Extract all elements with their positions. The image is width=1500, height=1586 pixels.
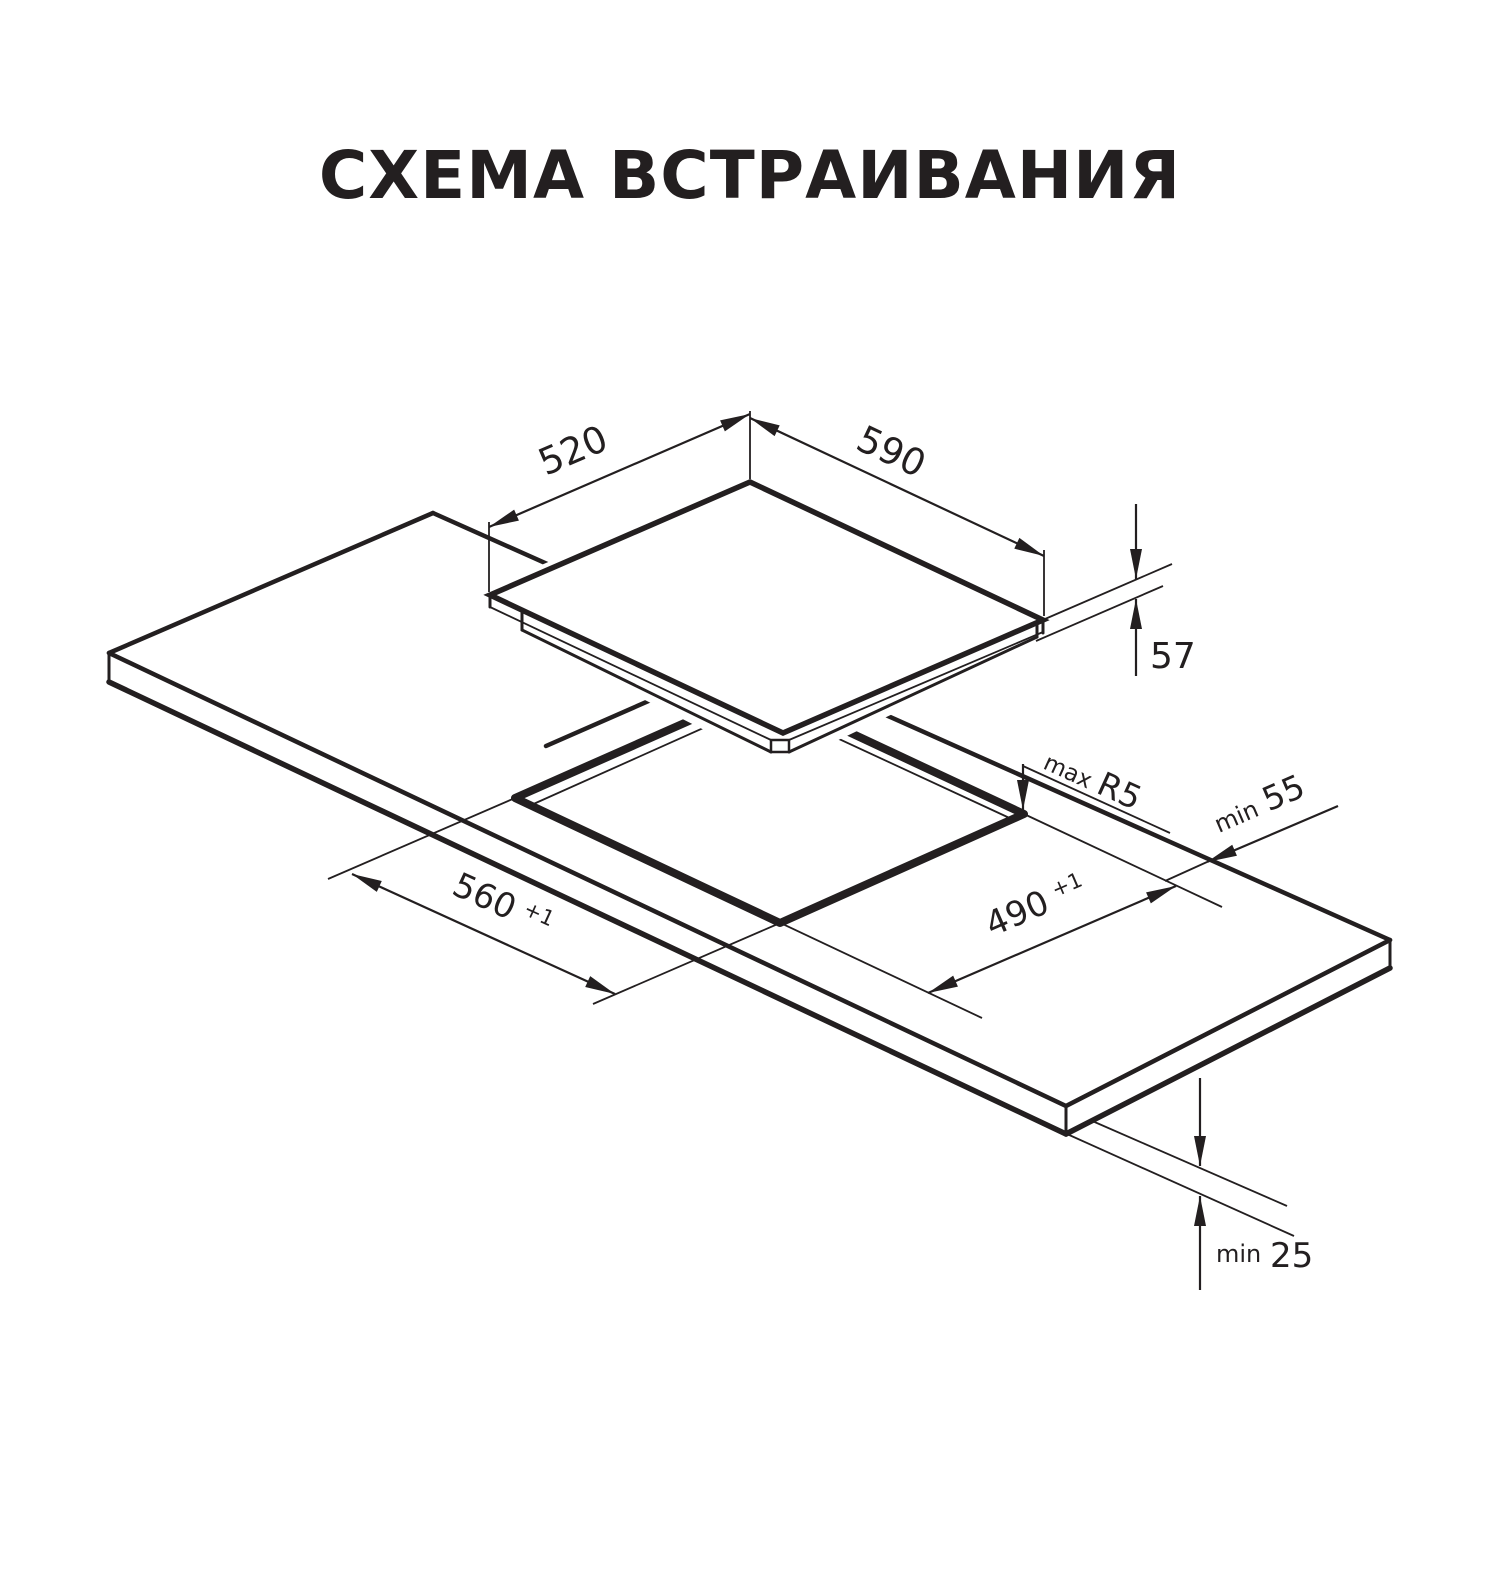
dim-min55-value: 55: [1256, 766, 1310, 818]
ext-line: [1036, 586, 1163, 641]
installation-diagram: СХЕМА ВСТРАИВАНИЯ: [0, 0, 1500, 1586]
dimension-arrowhead: [352, 874, 382, 892]
dim-520-label: 520: [532, 417, 614, 485]
dimension-arrowhead: [1194, 1136, 1206, 1166]
dimension-arrowhead: [1207, 845, 1237, 862]
page-title: СХЕМА ВСТРАИВАНИЯ: [319, 137, 1181, 214]
dim-590-label: 590: [850, 417, 932, 486]
dimension-arrowhead: [1014, 538, 1044, 556]
dimension-arrowhead: [489, 510, 519, 527]
dim-57-label: 57: [1150, 636, 1196, 677]
ext-line: [1045, 564, 1172, 619]
dimension-arrowhead: [750, 418, 780, 436]
ext-line: [1067, 1134, 1294, 1236]
dimension-arrowhead: [585, 976, 615, 994]
ext-line: [1090, 1120, 1287, 1206]
dimension-arrowhead: [1194, 1196, 1206, 1226]
cooktop-front-foot: [771, 740, 789, 752]
dimension-arrowhead: [1130, 599, 1142, 629]
dim-min25-value: 25: [1270, 1236, 1313, 1276]
dim-min25-label: min25: [1216, 1236, 1313, 1276]
installation-scheme-page: СХЕМА ВСТРАИВАНИЯ: [0, 0, 1500, 1586]
dim-min55-label: min55: [1207, 766, 1311, 840]
dim-min25-prefix: min: [1216, 1240, 1261, 1268]
dimension-arrowhead: [1130, 549, 1142, 579]
dimension-57: 57: [1036, 504, 1196, 677]
dimension-arrowhead: [720, 414, 750, 431]
dim-min55-prefix: min: [1210, 795, 1263, 839]
dim-560-tolerance: +1: [520, 897, 558, 932]
